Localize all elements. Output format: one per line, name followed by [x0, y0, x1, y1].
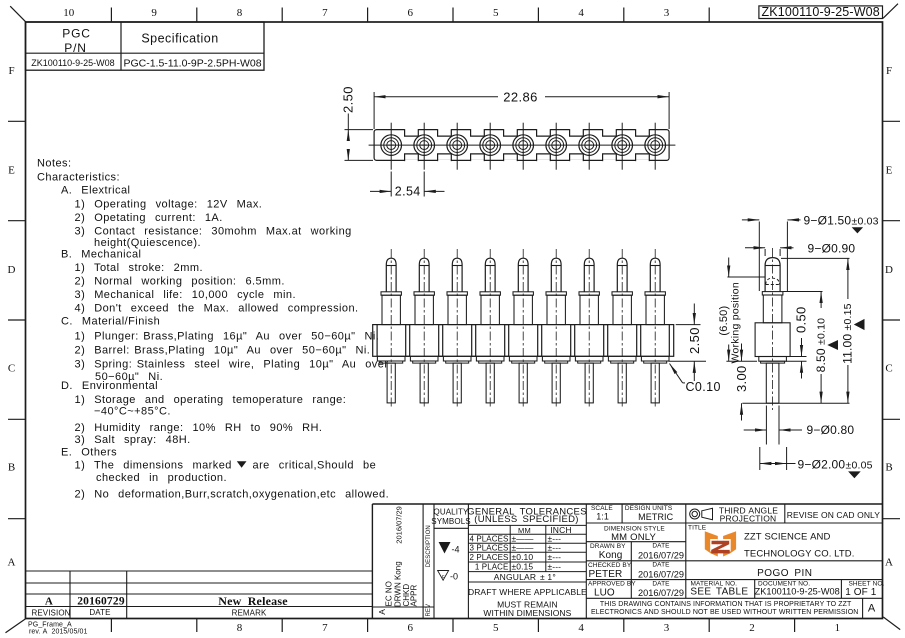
svg-text:1) Total stroke: 2mm.: 1) Total stroke: 2mm.	[75, 262, 203, 274]
svg-text:B: B	[8, 462, 15, 474]
svg-text:PETER: PETER	[588, 569, 622, 580]
svg-text:Notes:: Notes:	[37, 158, 72, 170]
svg-text:CHECKED BY: CHECKED BY	[588, 562, 632, 569]
svg-text:(6.50): (6.50)	[718, 306, 730, 336]
svg-text:4 PLACES: 4 PLACES	[469, 534, 508, 543]
svg-text:ZZT SCIENCE AND: ZZT SCIENCE AND	[744, 531, 831, 542]
svg-text:9−Ø1.50: 9−Ø1.50	[804, 214, 852, 228]
svg-text:DATE: DATE	[652, 580, 670, 587]
svg-text:SYMBOLS: SYMBOLS	[431, 517, 470, 526]
svg-text:SEE TABLE: SEE TABLE	[690, 587, 748, 598]
svg-text:A. Elextrical: A. Elextrical	[61, 185, 130, 197]
svg-text:1) Operating voltage: 12V: 1) Operating voltage: 12V Max.	[75, 198, 263, 210]
svg-text:DATE: DATE	[652, 561, 670, 568]
svg-text:PGC: PGC	[62, 27, 90, 41]
svg-text:LUO: LUO	[594, 588, 615, 599]
svg-text:2) Opetating current: 1A.: 2) Opetating current: 1A.	[75, 212, 223, 224]
svg-text:C. Material/Finish: C. Material/Finish	[61, 316, 160, 328]
svg-text:±---: ±---	[548, 542, 562, 552]
svg-text:±0.10: ±0.10	[815, 318, 827, 345]
svg-text:3) Contact resistance: 30mo: 3) Contact resistance: 30mohm Max.at wor…	[75, 226, 352, 238]
svg-text:2016/07/29: 2016/07/29	[395, 506, 404, 544]
svg-text:PG_Frame_A: PG_Frame_A	[28, 621, 72, 628]
svg-text:Characteristics:: Characteristics:	[37, 172, 120, 184]
svg-text:4: 4	[578, 7, 584, 19]
svg-text:1 PLACE: 1 PLACE	[475, 562, 509, 571]
svg-text:(UNLESS SPECIFIED): (UNLESS SPECIFIED)	[474, 514, 579, 525]
svg-text:rev. A 2015/05/01: rev. A 2015/05/01	[29, 628, 88, 635]
svg-text:3 PLACES: 3 PLACES	[469, 543, 508, 552]
svg-text:TITLE: TITLE	[688, 524, 707, 531]
svg-text:4: 4	[578, 622, 584, 634]
svg-text:0.50: 0.50	[794, 306, 809, 333]
svg-text:2) Humidity range: 10% RH: 2) Humidity range: 10% RH to 90% RH.	[75, 422, 323, 434]
svg-text:New Release: New Release	[218, 594, 288, 608]
svg-text:EC NO: EC NO	[385, 581, 394, 606]
svg-text:-4: -4	[452, 545, 460, 555]
svg-text:c: c	[442, 574, 445, 580]
svg-text:±---: ±---	[548, 552, 562, 562]
svg-text:±0.15: ±0.15	[512, 561, 534, 571]
svg-text:22.86: 22.86	[503, 89, 538, 104]
svg-text:Kong: Kong	[599, 550, 623, 561]
svg-text:THIS DRAWING CONTAINS INFORMAT: THIS DRAWING CONTAINS INFORMATION THAT I…	[600, 601, 852, 608]
svg-text:Working position: Working position	[729, 282, 741, 363]
svg-text:D: D	[8, 264, 16, 276]
svg-text:5: 5	[493, 622, 499, 634]
svg-text:2.50: 2.50	[687, 327, 702, 354]
svg-text:are critical,Should be: are critical,Should be	[253, 459, 377, 471]
svg-text:2) No deformation,Burr,scrat: 2) No deformation,Burr,scratch,oxygenati…	[75, 489, 390, 501]
svg-text:F: F	[886, 65, 892, 77]
svg-text:APPROVED BY: APPROVED BY	[588, 581, 636, 588]
svg-text:A: A	[377, 609, 387, 615]
svg-text:1) The dimensions marked: 1) The dimensions marked	[75, 459, 232, 471]
svg-text:±0.03: ±0.03	[852, 216, 879, 228]
svg-text:2) Normal working position:: 2) Normal working position: 6.5mm.	[75, 275, 285, 287]
svg-text:3) Mechanical life: 10,000: 3) Mechanical life: 10,000 cycle min.	[75, 289, 297, 301]
svg-text:1) Plunger: Brass,Plating 16: 1) Plunger: Brass,Plating 16µ" Au over 5…	[75, 330, 380, 342]
svg-text:2: 2	[749, 622, 755, 634]
svg-text:7: 7	[322, 622, 328, 634]
svg-text:METRIC: METRIC	[638, 512, 673, 522]
svg-text:C0.10: C0.10	[686, 380, 721, 394]
svg-text:A: A	[8, 557, 16, 569]
svg-text:8: 8	[237, 622, 243, 634]
svg-text:2 PLACES: 2 PLACES	[469, 553, 508, 562]
svg-text:A: A	[885, 557, 893, 569]
svg-text:±0.05: ±0.05	[846, 459, 873, 471]
svg-text:MM ONLY: MM ONLY	[611, 532, 656, 543]
svg-text:REVISE ON CAD ONLY: REVISE ON CAD ONLY	[787, 510, 881, 520]
svg-text:20160729: 20160729	[77, 596, 125, 608]
svg-text:±0.10: ±0.10	[512, 552, 534, 562]
svg-text:E: E	[8, 165, 15, 177]
svg-text:C: C	[885, 363, 892, 375]
svg-text:3) Salt spray: 48H.: 3) Salt spray: 48H.	[75, 434, 191, 446]
svg-text:4) Don't exceed the Max.: 4) Don't exceed the Max. allowed compres…	[75, 302, 359, 314]
svg-text:9: 9	[151, 7, 157, 19]
svg-text:DRAWN BY: DRAWN BY	[590, 543, 626, 550]
svg-text:REVISION: REVISION	[31, 609, 70, 618]
svg-text:A: A	[45, 595, 53, 607]
svg-text:checked in production.: checked in production.	[96, 472, 227, 484]
svg-text:1 OF 1: 1 OF 1	[845, 587, 877, 598]
svg-text:2) Barrel: Brass,Plating 10µ: 2) Barrel: Brass,Plating 10µ" Au over 50…	[75, 345, 371, 357]
svg-text:2.50: 2.50	[340, 86, 355, 113]
svg-text:A: A	[868, 603, 876, 615]
svg-text:8: 8	[237, 7, 243, 19]
svg-text:11.00: 11.00	[840, 334, 854, 364]
svg-text:6: 6	[408, 622, 414, 634]
svg-text:ZK100110-9-25-W08: ZK100110-9-25-W08	[762, 5, 880, 19]
svg-text:3: 3	[664, 622, 670, 634]
svg-text:-0: -0	[450, 572, 458, 582]
svg-text:−40°C~+85°C.: −40°C~+85°C.	[94, 406, 171, 418]
svg-text:3: 3	[664, 7, 670, 19]
svg-text:F: F	[8, 65, 14, 77]
svg-text:1:1: 1:1	[596, 511, 609, 521]
svg-text:PROJECTION: PROJECTION	[720, 513, 777, 523]
svg-text:ELECTRONICS AND SHOULD NOT BE: ELECTRONICS AND SHOULD NOT BE USED WITHO…	[591, 609, 858, 616]
svg-text:±---: ±---	[548, 561, 562, 571]
svg-text:P/N: P/N	[64, 41, 86, 55]
svg-text:E. Others: E. Others	[61, 447, 117, 459]
svg-text:2.54: 2.54	[395, 184, 421, 198]
svg-text:10: 10	[63, 7, 75, 19]
svg-text:E: E	[886, 165, 893, 177]
svg-text:±0.15: ±0.15	[842, 303, 854, 330]
svg-text:9−Ø0.80: 9−Ø0.80	[807, 423, 855, 437]
svg-text:2016/07/29: 2016/07/29	[638, 569, 684, 579]
svg-text:D: D	[885, 264, 893, 276]
svg-text:DRAFT WHERE APPLICABLE: DRAFT WHERE APPLICABLE	[468, 587, 587, 597]
svg-text:6: 6	[408, 7, 414, 19]
svg-text:D. Environmental: D. Environmental	[61, 380, 158, 392]
svg-text:Specification: Specification	[141, 32, 218, 46]
svg-text:DESCRIPTION: DESCRIPTION	[426, 525, 432, 567]
svg-text:APPR: APPR	[410, 584, 419, 606]
svg-text:8.50: 8.50	[814, 348, 828, 372]
svg-text:ZK100110-9-25-W08: ZK100110-9-25-W08	[31, 58, 114, 68]
svg-text:3.00: 3.00	[734, 365, 749, 392]
svg-text:C: C	[8, 363, 15, 375]
svg-text:7: 7	[322, 7, 328, 19]
svg-text:± 1°: ± 1°	[540, 572, 556, 582]
svg-text:POGO PIN: POGO PIN	[757, 568, 812, 579]
svg-text:ANGULAR: ANGULAR	[494, 572, 537, 582]
svg-text:REMARK: REMARK	[232, 609, 267, 618]
svg-text:B: B	[885, 462, 892, 474]
svg-text:WITHIN DIMENSIONS: WITHIN DIMENSIONS	[483, 608, 571, 618]
svg-text:ZK100110-9-25-W08: ZK100110-9-25-W08	[755, 587, 840, 597]
svg-text:1: 1	[835, 622, 841, 634]
svg-text:3) Spring: Stainless steel: 3) Spring: Stainless steel wire, Plating…	[75, 359, 389, 371]
svg-text:1) Storage and operating t: 1) Storage and operating temoperature ra…	[75, 394, 347, 406]
svg-text:TECHNOLOGY CO. LTD.: TECHNOLOGY CO. LTD.	[744, 549, 854, 560]
svg-text:height(Quiescence).: height(Quiescence).	[94, 237, 201, 249]
svg-text:2016/07/29: 2016/07/29	[638, 550, 684, 560]
svg-text:B. Mechanical: B. Mechanical	[61, 249, 141, 261]
svg-text:DATE: DATE	[652, 542, 670, 549]
svg-text:DATE: DATE	[89, 608, 110, 617]
svg-text:±——: ±——	[512, 542, 534, 552]
svg-text:2016/07/29: 2016/07/29	[638, 588, 684, 598]
svg-text:9−Ø2.00: 9−Ø2.00	[798, 457, 846, 471]
svg-text:REV: REV	[426, 604, 432, 617]
svg-text:PGC-1.5-11.0-9P-2.5PH-W08: PGC-1.5-11.0-9P-2.5PH-W08	[123, 58, 261, 70]
svg-text:9−Ø0.90: 9−Ø0.90	[808, 241, 856, 255]
svg-text:5: 5	[493, 7, 499, 19]
svg-text:QUALITY: QUALITY	[434, 508, 469, 517]
